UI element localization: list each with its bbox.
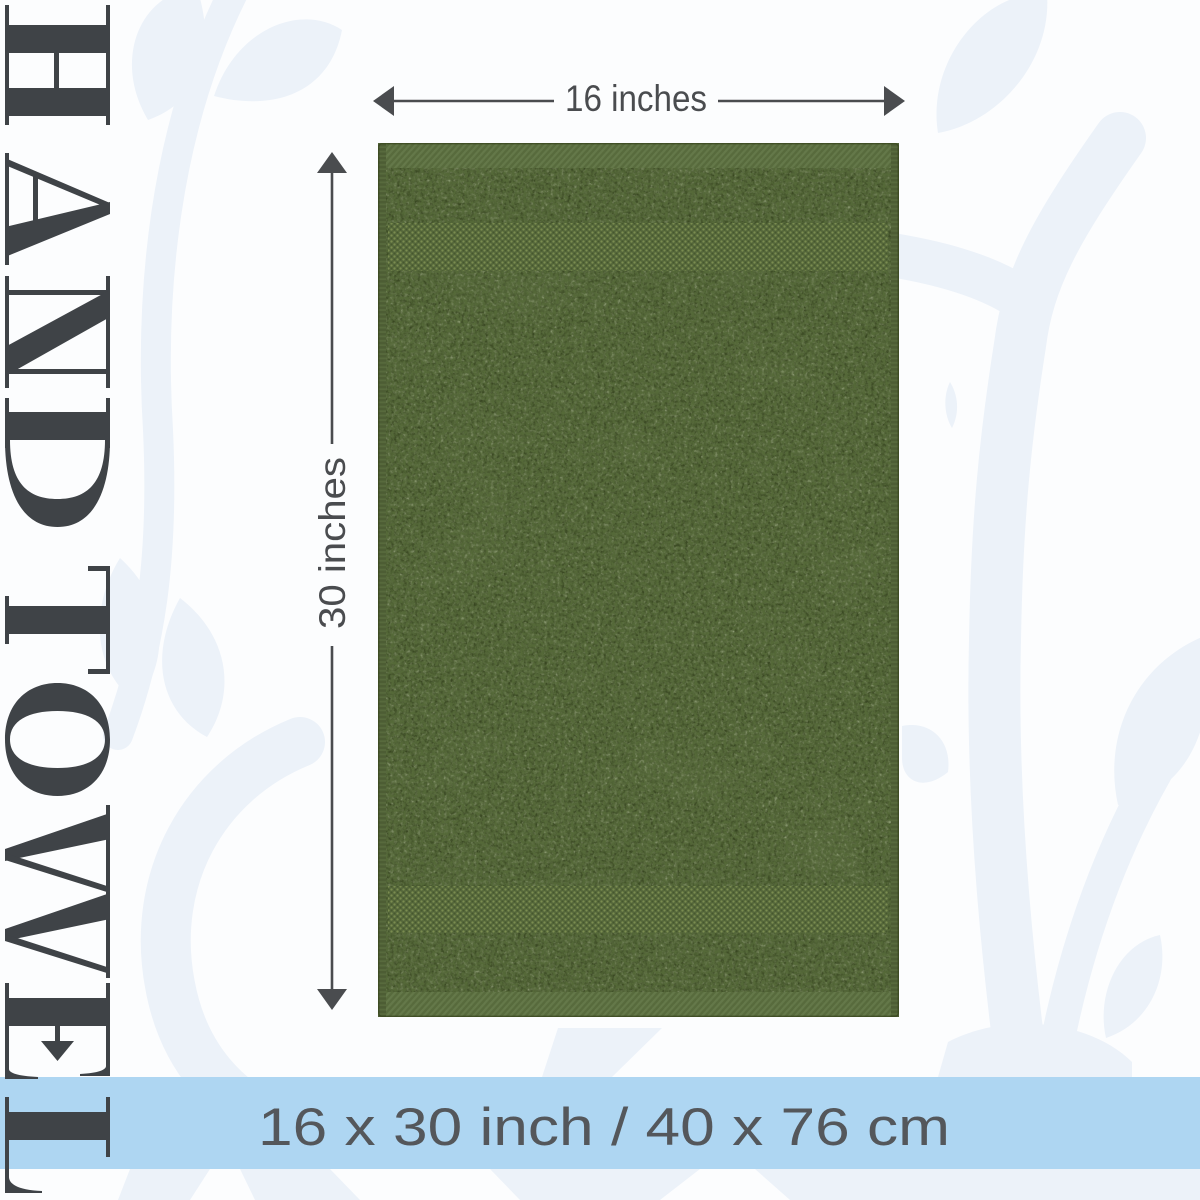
svg-text:30 inches: 30 inches bbox=[312, 457, 353, 629]
svg-text:16 inches: 16 inches bbox=[565, 78, 707, 119]
svg-text:16 x 30 inch / 40 x 76 cm: 16 x 30 inch / 40 x 76 cm bbox=[258, 1098, 950, 1157]
